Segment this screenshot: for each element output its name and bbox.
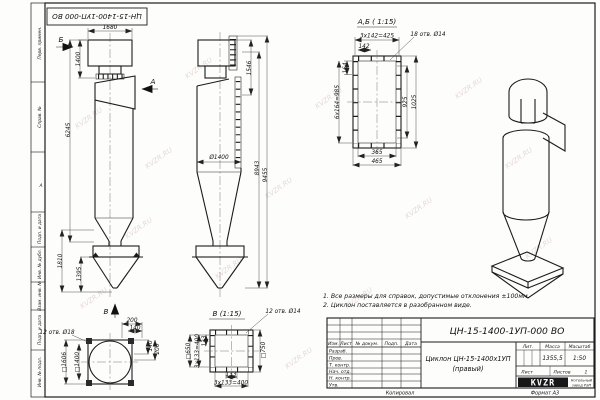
list-label: Лист [520, 370, 533, 376]
view-arrow-a-label: А [150, 77, 156, 86]
view-arrow-b-label: Б [59, 35, 64, 44]
watermark-text: KVZR.RU [184, 56, 214, 80]
dim-sq650: □650 [186, 342, 192, 359]
row-prov: Пров. [329, 356, 342, 362]
dim-1680: 1680 [103, 25, 118, 31]
kvzr-logo-text: KVZR [531, 379, 555, 389]
product-variant: (правый) [452, 365, 483, 373]
detail-ab-holes: 18 отв. Ø14 [410, 31, 445, 38]
margin-label: Взам. инв. № [37, 281, 43, 311]
zone-marker: А [38, 183, 42, 189]
dim-9455: 9455 [263, 167, 269, 182]
margin-label: Подп. и дата [37, 214, 43, 244]
col-izm: Изм. [328, 341, 339, 347]
corner-pad [86, 338, 92, 344]
dim-164: 164 [343, 62, 349, 73]
scale-label: Масштаб [569, 344, 591, 350]
listov-label: Листов [552, 370, 570, 376]
dim-8943: 8943 [255, 160, 261, 175]
listov-value: 1 [585, 370, 588, 376]
detail-ab-title: А,Б ( 1:15) [357, 17, 397, 26]
top-stamp-number: ЦН-15-1400-1УП-000 ВО [52, 12, 142, 21]
watermark-text: KVZR.RU [284, 346, 314, 370]
dim-sq750: □750 [261, 341, 267, 358]
watermark-text: KVZR.RU [504, 146, 534, 170]
view-arrow-v-label: В [104, 307, 109, 316]
dim-1810: 1810 [58, 253, 64, 268]
dim-1395: 1395 [77, 266, 83, 281]
format-label: Формат А3 [531, 391, 559, 397]
watermark-text: KVZR.RU [404, 196, 434, 220]
dim-200-side: 200 [155, 343, 161, 354]
dim-140-side: 140 [148, 340, 154, 351]
dim-142: 142 [358, 44, 369, 50]
dim-1400: 1400 [76, 51, 82, 66]
bottom-view-holes: 12 отв. Ø18 [39, 329, 74, 336]
col-data: Дата [404, 341, 417, 347]
row-nkontr: Н. контр. [329, 376, 351, 382]
detail-ab: А,Б ( 1:15) 18 отв. Ø14 3x142=425 142 16… [335, 17, 446, 166]
dim-3x142: 3x142=425 [360, 34, 394, 40]
dim-3x133-left: 3x133=400 [195, 334, 201, 368]
front-view: Б А В 1680 1400 6245 1810 1395 [56, 25, 158, 318]
corner-pad [86, 380, 92, 386]
dim-6245: 6245 [66, 122, 72, 137]
lit-label: Лит. [522, 344, 534, 350]
detail-v: В (1:15) 12 отв. Ø14 □650 3x133=400 133 … [186, 308, 301, 387]
row-nachotd: Нач. отд. [329, 369, 351, 375]
side-view: Ø1400 1546 8943 9455 [192, 32, 269, 297]
watermark-layer: KVZR.RU KVZR.RU KVZR.RU KVZR.RU KVZR.RU … [74, 56, 554, 370]
watermark-text: KVZR.RU [74, 106, 104, 130]
note-line-2: 2. Циклон поставляется в разобранном вид… [323, 301, 472, 309]
mass-value: 1355,5 [542, 356, 563, 362]
dim-133-bottom: 133 [225, 372, 236, 378]
margin-label: Перв. примен. [37, 27, 43, 60]
doc-number: ЦН-15-1400-1УП-000 ВО [450, 326, 565, 337]
dim-200-top: 200 [126, 318, 137, 324]
title-block: Изм. Лист № докум. Подп. Дата Разраб. Пр… [327, 318, 594, 397]
margin-label: Справ. № [37, 106, 43, 128]
dim-465: 465 [371, 159, 382, 165]
copied-label: Копировал [386, 391, 415, 397]
bottom-view: 12 отв. Ø18 □1606 □1400 200 140 140 200 [39, 318, 161, 391]
dim-925: 925 [403, 96, 409, 107]
watermark-text: KVZR.RU [124, 216, 154, 240]
dim-3x133-bottom: 3x133=400 [214, 381, 248, 387]
company-line-1: Котельный [571, 379, 593, 383]
watermark-text: KVZR.RU [214, 256, 244, 280]
detail-v-title: В (1:15) [213, 309, 242, 318]
col-list: Лист [339, 341, 352, 347]
company-line-2: завод РЭП [572, 384, 592, 388]
dim-6x164: 6x164=985 [335, 85, 341, 119]
col-podp: Подп. [385, 341, 399, 347]
dim-1546: 1546 [247, 60, 253, 75]
detail-v-holes: 12 отв. Ø14 [265, 308, 300, 315]
note-line-1: 1. Все размеры для справок, допустимые о… [323, 293, 530, 300]
row-tkontr: Т. контр. [329, 363, 350, 369]
scale-value: 1:50 [573, 356, 586, 362]
corner-pad [128, 380, 134, 386]
corner-pad [128, 338, 134, 344]
mass-label: Масса [545, 344, 560, 350]
sheet-frame: Перв. примен. Справ. № Подп. и дата Инв.… [31, 3, 595, 397]
dim-sq1606: □1606 [62, 352, 68, 373]
drawing-sheet: KVZR.RU KVZR.RU KVZR.RU KVZR.RU KVZR.RU … [0, 0, 600, 400]
dim-1025: 1025 [412, 94, 418, 109]
drawing-canvas: KVZR.RU KVZR.RU KVZR.RU KVZR.RU KVZR.RU … [0, 0, 600, 400]
row-utv: Утв. [329, 383, 339, 389]
col-doc: № докум. [355, 341, 379, 347]
isometric-view [492, 79, 565, 298]
dim-dia-1400: Ø1400 [208, 154, 229, 161]
margin-label: Инв. № дубл. [37, 249, 43, 279]
watermark-text: KVZR.RU [454, 76, 484, 100]
dim-sq1400: □1400 [75, 352, 81, 373]
margin-label: Инв. № подл. [37, 357, 43, 387]
dim-133-left: 133 [202, 335, 208, 346]
dim-365: 365 [371, 150, 382, 156]
dim-140-top: 140 [129, 326, 140, 332]
product-name: Циклон ЦН-15-1400х1УП [425, 355, 510, 363]
row-razrab: Разраб. [329, 349, 347, 355]
watermark-text: KVZR.RU [144, 146, 174, 170]
